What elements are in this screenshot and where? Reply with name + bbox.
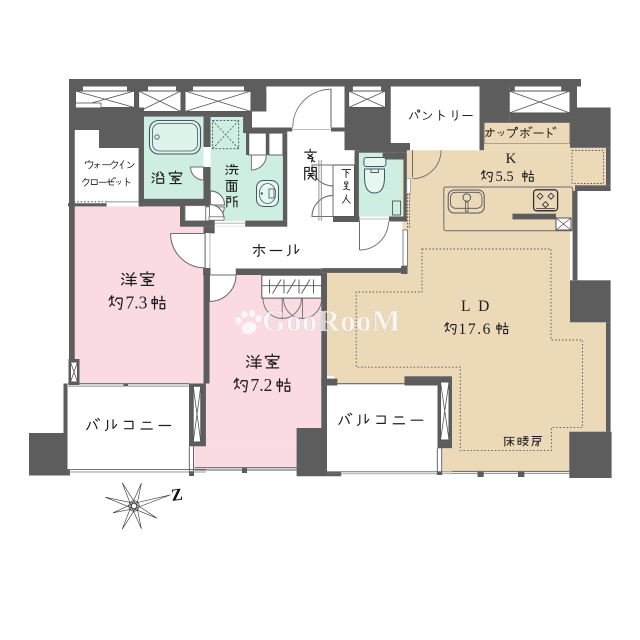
svg-text:5.5: 5.5 (496, 169, 514, 185)
svg-text:GooRooM: GooRooM (262, 304, 401, 338)
svg-text:7.3: 7.3 (126, 293, 148, 313)
svg-text:L D: L D (461, 298, 492, 315)
svg-text:17.6: 17.6 (459, 321, 493, 338)
svg-text:K: K (506, 151, 517, 167)
svg-text:7.2: 7.2 (251, 375, 273, 395)
